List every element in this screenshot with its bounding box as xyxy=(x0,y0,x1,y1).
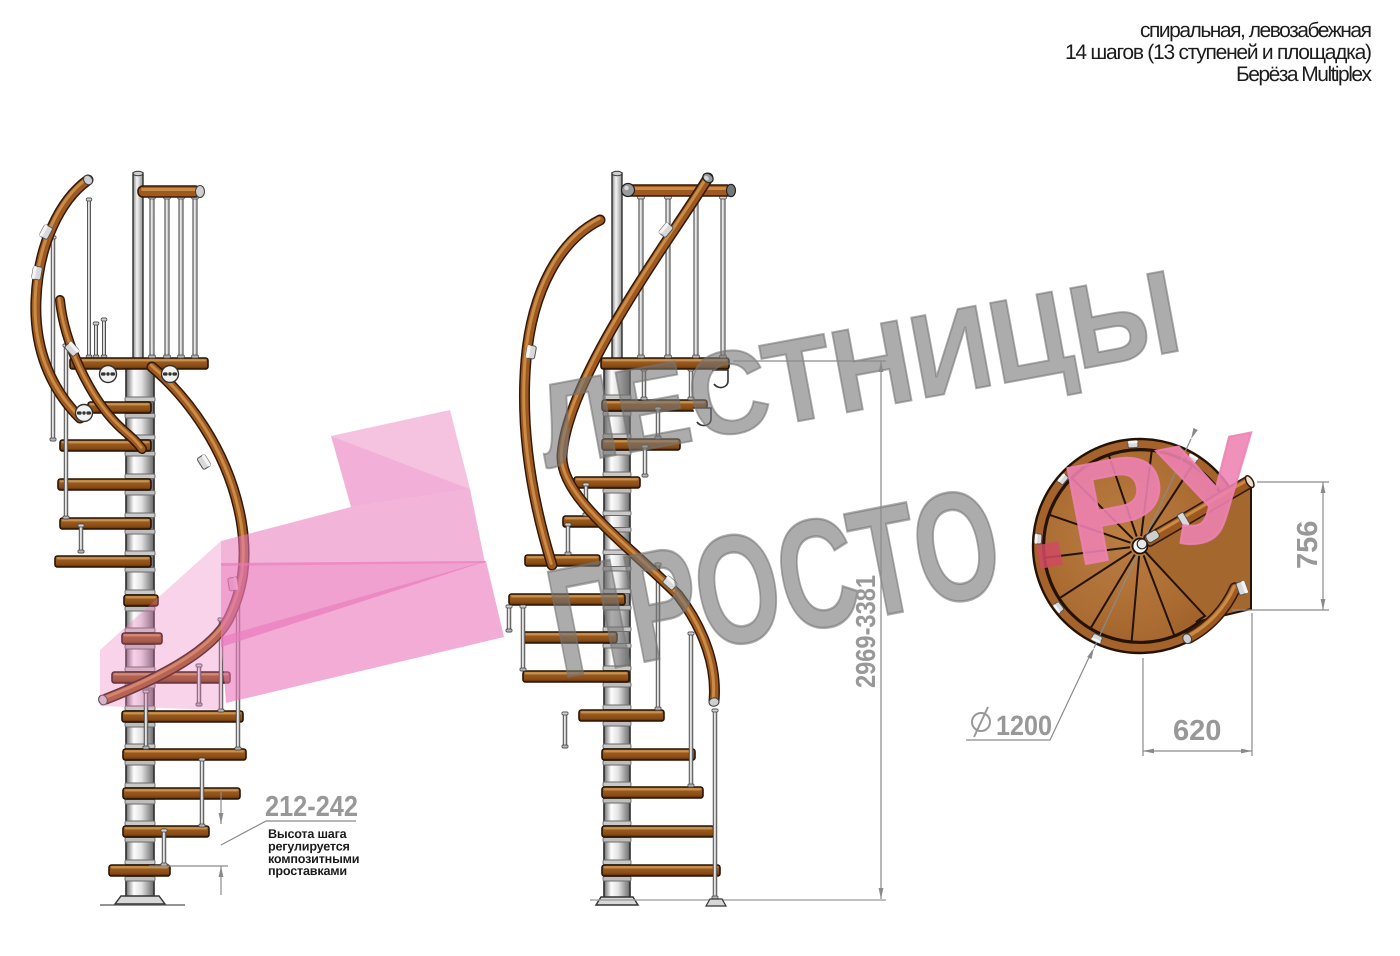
svg-text:Высота шагарегулируетсякомпози: Высота шагарегулируетсякомпозитнымипрост… xyxy=(268,827,359,878)
svg-text:756: 756 xyxy=(1292,521,1324,569)
svg-text:212-242: 212-242 xyxy=(265,791,358,823)
svg-text:620: 620 xyxy=(1173,715,1221,747)
svg-text:1200: 1200 xyxy=(996,710,1052,741)
svg-text:2969-3381: 2969-3381 xyxy=(850,575,881,688)
